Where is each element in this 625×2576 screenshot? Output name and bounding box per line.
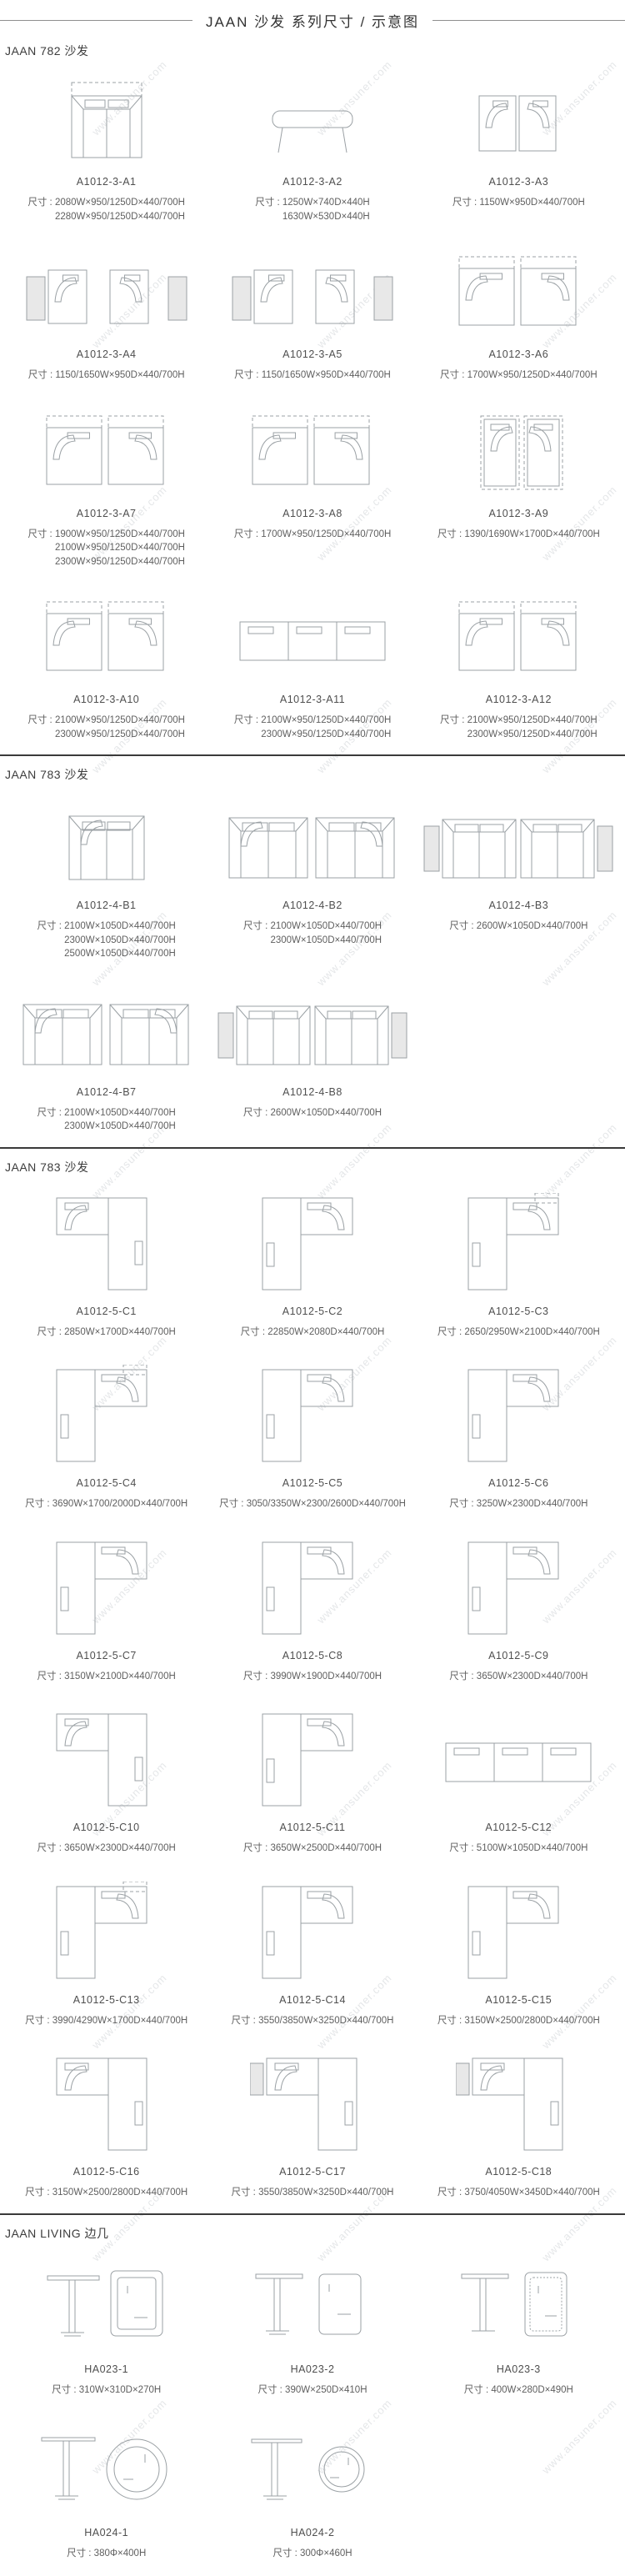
product-model: A1012-5-C15 [421, 1994, 617, 2006]
lshape-left-icon [8, 1535, 204, 1641]
product-row: HA023-1尺寸 : 310W×310D×270HHA023-2尺寸 : 39… [3, 2242, 622, 2406]
dimension-prefix: 尺寸 : [437, 1328, 465, 1338]
product-dimensions: 尺寸 : 3990/4290W×1700D×440/700H [8, 2017, 204, 2027]
dimension-prefix: 尺寸 : [243, 922, 271, 945]
lshape-left-icon [214, 1190, 410, 1297]
catalog-page: JAAN 沙发 系列尺寸 / 示意图 JAAN 782 沙发A1012-3-A1… [0, 0, 625, 2569]
lshape-left-icon [421, 1879, 617, 1986]
product-model: A1012-3-A6 [421, 348, 617, 360]
product-dimensions: 尺寸 : 1250W×740D×440H1630W×530D×440H [214, 198, 410, 222]
dimension-prefix: 尺寸 : [37, 1328, 65, 1338]
product-cell: A1012-3-A3尺寸 : 1150W×950D×440/700H [416, 59, 622, 232]
dimension-line: 2280W×950/1250D×440/700H [55, 213, 185, 223]
dimension-line: 1150/1650W×950D×440/700H [262, 371, 391, 381]
dimension-line: 390W×250D×410H [285, 2386, 367, 2396]
dimension-line: 2300W×1050D×440/700H [270, 936, 382, 946]
sofa-pair-icon [214, 798, 410, 891]
sofa-pair-table-icon [421, 798, 617, 891]
dimension-line: 1390/1690W×1700D×440/700H [464, 530, 599, 540]
side-table-dotted-icon [421, 2257, 617, 2355]
product-model: A1012-5-C4 [8, 1477, 204, 1489]
lshape-left-icon [214, 1535, 410, 1641]
product-cell: A1012-4-B7尺寸 : 2100W×1050D×440/700H2300W… [3, 970, 209, 1142]
lshape-left-icon [421, 1535, 617, 1641]
dimension-line: 1250W×740D×440H [282, 198, 370, 208]
product-model: HA023-2 [214, 2363, 410, 2375]
catalog-section: JAAN 783 沙发A1012-5-C1尺寸 : 2850W×1700D×44… [0, 1147, 625, 2208]
product-dimensions: 尺寸 : 1900W×950/1250D×440/700H2100W×950/1… [8, 530, 204, 568]
product-model: A1012-3-A11 [214, 694, 410, 705]
catalog-section: JAAN LIVING 边几HA023-1尺寸 : 310W×310D×270H… [0, 2213, 625, 2569]
product-dimensions: 尺寸 : 390W×250D×410H [214, 2386, 410, 2396]
dimension-line: 22850W×2080D×440/700H [267, 1328, 384, 1338]
product-model: A1012-5-C1 [8, 1306, 204, 1317]
product-cell: A1012-5-C9尺寸 : 3650W×2300D×440/700H [416, 1520, 622, 1692]
dimension-line: 2100W×1050D×440/700H [64, 922, 176, 932]
product-model: A1012-3-A8 [214, 508, 410, 519]
catalog-section: JAAN 783 沙发A1012-4-B1尺寸 : 2100W×1050D×44… [0, 754, 625, 1142]
dimension-prefix: 尺寸 : [37, 1672, 65, 1682]
product-cell: A1012-3-A8尺寸 : 1700W×950/1250D×440/700H [209, 391, 415, 578]
lshape-left-icon [214, 1362, 410, 1469]
product-dimensions: 尺寸 : 2850W×1700D×440/700H [8, 1328, 204, 1338]
dimension-line: 2300W×950/1250D×440/700H [467, 730, 597, 740]
dimension-prefix: 尺寸 : [440, 371, 467, 381]
sofa-pair-icon [8, 985, 204, 1078]
page-title: JAAN 沙发 系列尺寸 / 示意图 [206, 10, 419, 31]
dimension-line: 3250W×2300D×440/700H [477, 1500, 588, 1510]
product-model: HA023-3 [421, 2363, 617, 2375]
dimension-line: 2100W×1050D×440/700H [64, 1109, 176, 1119]
dimension-prefix: 尺寸 : [52, 2386, 79, 2396]
dimension-line: 5100W×1050D×440/700H [477, 1844, 588, 1854]
dimension-prefix: 尺寸 : [440, 716, 467, 739]
product-row: A1012-3-A7尺寸 : 1900W×950/1250D×440/700H2… [3, 391, 622, 578]
product-dimensions: 尺寸 : 2600W×1050D×440/700H [214, 1109, 410, 1119]
product-cell: A1012-5-C4尺寸 : 3690W×1700/2000D×440/700H [3, 1347, 209, 1520]
dimension-line: 2300W×950/1250D×440/700H [55, 558, 185, 568]
lshape-dashed-icon [8, 1879, 204, 1986]
product-dimensions: 尺寸 : 3550/3850W×3250D×440/700H [214, 2017, 410, 2027]
dimension-prefix: 尺寸 : [272, 2549, 300, 2559]
sofa-long-icon [214, 592, 410, 685]
side-table-portrait-icon [214, 2257, 410, 2355]
dimension-prefix: 尺寸 : [25, 2017, 52, 2027]
dimension-line: 2100W×950/1250D×440/700H [261, 716, 391, 726]
product-model: A1012-4-B2 [214, 900, 410, 911]
dimension-prefix: 尺寸 : [243, 1844, 271, 1854]
product-row: A1012-5-C4尺寸 : 3690W×1700/2000D×440/700H… [3, 1347, 622, 1520]
product-dimensions: 尺寸 : 3150W×2500/2800D×440/700H [8, 2188, 204, 2198]
dimension-line: 1630W×530D×440H [282, 213, 370, 223]
product-row: A1012-3-A1尺寸 : 2080W×950/1250D×440/700H2… [3, 59, 622, 232]
dimension-line: 1150/1650W×950D×440/700H [55, 371, 184, 381]
dimension-line: 3550/3850W×3250D×440/700H [258, 2017, 393, 2027]
lshape-right-icon [8, 2051, 204, 2158]
dimension-prefix: 尺寸 : [27, 716, 55, 739]
dimension-line: 2300W×1050D×440/700H [64, 1122, 176, 1132]
product-model: A1012-5-C8 [214, 1650, 410, 1661]
product-dimensions: 尺寸 : 1700W×950/1250D×440/700H [214, 530, 410, 540]
product-dimensions: 尺寸 : 3150W×2100D×440/700H [8, 1672, 204, 1682]
product-dimensions: 尺寸 : 2100W×1050D×440/700H2300W×1050D×440… [8, 1109, 204, 1132]
catalog-section: JAAN 782 沙发A1012-3-A1尺寸 : 2080W×950/1250… [0, 33, 625, 749]
dimension-line: 3650W×2500D×440/700H [270, 1844, 382, 1854]
product-cell: A1012-5-C11尺寸 : 3650W×2500D×440/700H [209, 1691, 415, 1864]
dimension-prefix: 尺寸 : [449, 1500, 477, 1510]
product-row: A1012-5-C10尺寸 : 3650W×2300D×440/700HA101… [3, 1691, 622, 1864]
module-pair-table-icon [214, 247, 410, 340]
product-dimensions: 尺寸 : 3550/3850W×3250D×440/700H [214, 2188, 410, 2198]
dimension-line: 1900W×950/1250D×440/700H [55, 530, 185, 540]
product-cell: HA023-3尺寸 : 400W×280D×490H [416, 2242, 622, 2406]
lshape-left-icon [214, 1879, 410, 1986]
dimension-line: 2600W×1050D×440/700H [270, 1109, 382, 1119]
dimension-prefix: 尺寸 : [25, 1500, 52, 1510]
product-cell: A1012-3-A5尺寸 : 1150/1650W×950D×440/700H [209, 232, 415, 391]
product-dimensions: 尺寸 : 3050/3350W×2300/2600D×440/700H [214, 1500, 410, 1510]
dimension-prefix: 尺寸 : [243, 1672, 271, 1682]
dimension-line: 3990/4290W×1700D×440/700H [52, 2017, 187, 2027]
product-model: HA024-1 [8, 2527, 204, 2538]
product-model: A1012-4-B1 [8, 900, 204, 911]
dimension-line: 2100W×950/1250D×440/700H [55, 544, 185, 554]
product-cell: HA023-2尺寸 : 390W×250D×410H [209, 2242, 415, 2406]
product-dimensions: 尺寸 : 3690W×1700/2000D×440/700H [8, 1500, 204, 1510]
product-dimensions: 尺寸 : 2080W×950/1250D×440/700H2280W×950/1… [8, 198, 204, 222]
dimension-line: 2850W×1700D×440/700H [64, 1328, 176, 1338]
chaise-pair-icon [421, 406, 617, 499]
dimension-line: 2500W×1050D×440/700H [64, 950, 176, 960]
dimension-line: 3650W×2300D×440/700H [64, 1844, 176, 1854]
product-row: A1012-4-B1尺寸 : 2100W×1050D×440/700H2300W… [3, 783, 622, 970]
dimension-prefix: 尺寸 : [437, 2188, 465, 2198]
module-pair-dashed-icon [421, 592, 617, 685]
dimension-prefix: 尺寸 : [437, 2017, 465, 2027]
product-cell: A1012-5-C18尺寸 : 3750/4050W×3450D×440/700… [416, 2036, 622, 2208]
page-header: JAAN 沙发 系列尺寸 / 示意图 [0, 0, 625, 33]
dimension-line: 3150W×2500/2800D×440/700H [464, 2017, 599, 2027]
product-model: A1012-5-C11 [214, 1822, 410, 1833]
product-model: A1012-3-A4 [8, 348, 204, 360]
product-cell: A1012-4-B2尺寸 : 2100W×1050D×440/700H2300W… [209, 783, 415, 970]
product-row: A1012-3-A4尺寸 : 1150/1650W×950D×440/700HA… [3, 232, 622, 391]
lshape-table-icon [214, 2051, 410, 2158]
dimension-prefix: 尺寸 : [464, 2386, 492, 2396]
product-row: A1012-5-C13尺寸 : 3990/4290W×1700D×440/700… [3, 1864, 622, 2037]
product-cell: A1012-3-A7尺寸 : 1900W×950/1250D×440/700H2… [3, 391, 209, 578]
product-cell: A1012-5-C15尺寸 : 3150W×2500/2800D×440/700… [416, 1864, 622, 2037]
product-dimensions: 尺寸 : 310W×310D×270H [8, 2386, 204, 2396]
product-cell: A1012-3-A4尺寸 : 1150/1650W×950D×440/700H [3, 232, 209, 391]
dimension-line: 3750/4050W×3450D×440/700H [464, 2188, 599, 2198]
dimension-prefix: 尺寸 : [231, 2017, 258, 2027]
product-row: A1012-4-B7尺寸 : 2100W×1050D×440/700H2300W… [3, 970, 622, 1142]
product-model: A1012-5-C10 [8, 1822, 204, 1833]
dimension-prefix: 尺寸 : [231, 2188, 258, 2198]
product-dimensions: 尺寸 : 380Φ×400H [8, 2549, 204, 2559]
lshape-left-icon [214, 1706, 410, 1813]
product-model: A1012-4-B8 [214, 1086, 410, 1098]
product-dimensions: 尺寸 : 2600W×1050D×440/700H [421, 922, 617, 932]
dimension-prefix: 尺寸 : [449, 1672, 477, 1682]
dimension-line: 3150W×2500/2800D×440/700H [52, 2188, 187, 2198]
product-model: HA024-2 [214, 2527, 410, 2538]
product-dimensions: 尺寸 : 2650/2950W×2100D×440/700H [421, 1328, 617, 1338]
dimension-line: 2600W×1050D×440/700H [477, 922, 588, 932]
product-cell: A1012-3-A12尺寸 : 2100W×950/1250D×440/700H… [416, 577, 622, 749]
product-model: A1012-3-A10 [8, 694, 204, 705]
product-row: A1012-5-C1尺寸 : 2850W×1700D×440/700HA1012… [3, 1175, 622, 1348]
product-model: A1012-3-A2 [214, 176, 410, 188]
product-model: A1012-5-C2 [214, 1306, 410, 1317]
dimension-prefix: 尺寸 : [234, 371, 262, 381]
dimension-line: 2300W×950/1250D×440/700H [261, 730, 391, 740]
product-model: A1012-5-C3 [421, 1306, 617, 1317]
module-pair-icon [421, 74, 617, 168]
product-cell: HA024-1尺寸 : 380Φ×400H [3, 2405, 209, 2569]
section-title: JAAN 783 沙发 [5, 766, 622, 783]
dimension-prefix: 尺寸 : [37, 1109, 65, 1132]
dimension-line: 400W×280D×490H [491, 2386, 572, 2396]
lshape-dashed-icon [8, 1362, 204, 1469]
dimension-line: 1700W×950/1250D×440/700H [261, 530, 391, 540]
module-pair-dashed-icon [8, 406, 204, 499]
lshape-dashed-icon [421, 1190, 617, 1297]
product-model: HA023-1 [8, 2363, 204, 2375]
dimension-line: 380Φ×400H [94, 2549, 147, 2559]
lshape-right-icon [8, 1190, 204, 1297]
dimension-prefix: 尺寸 : [449, 922, 477, 932]
product-dimensions: 尺寸 : 2100W×1050D×440/700H2300W×1050D×440… [214, 922, 410, 945]
product-model: A1012-3-A3 [421, 176, 617, 188]
product-dimensions: 尺寸 : 1150/1650W×950D×440/700H [8, 371, 204, 381]
product-dimensions: 尺寸 : 300Φ×460H [214, 2549, 410, 2559]
product-cell: A1012-3-A10尺寸 : 2100W×950/1250D×440/700H… [3, 577, 209, 749]
product-cell: A1012-5-C2尺寸 : 22850W×2080D×440/700H [209, 1175, 415, 1348]
dimension-line: 2300W×1050D×440/700H [64, 936, 176, 946]
lshape-left-icon [421, 1362, 617, 1469]
product-model: A1012-5-C16 [8, 2166, 204, 2178]
section-title: JAAN LIVING 边几 [5, 2225, 622, 2242]
product-model: A1012-5-C6 [421, 1477, 617, 1489]
product-dimensions: 尺寸 : 3650W×2500D×440/700H [214, 1844, 410, 1854]
section-title: JAAN 783 沙发 [5, 1159, 622, 1175]
product-model: A1012-5-C14 [214, 1994, 410, 2006]
product-dimensions: 尺寸 : 1150/1650W×950D×440/700H [214, 371, 410, 381]
product-dimensions: 尺寸 : 1700W×950/1250D×440/700H [421, 371, 617, 381]
product-cell: A1012-5-C3尺寸 : 2650/2950W×2100D×440/700H [416, 1175, 622, 1348]
product-dimensions: 尺寸 : 3650W×2300D×440/700H [8, 1844, 204, 1854]
dimension-line: 1700W×950/1250D×440/700H [467, 371, 597, 381]
round-table-large-icon [8, 2420, 204, 2518]
dimension-line: 3990W×1900D×440/700H [270, 1672, 382, 1682]
product-cell: A1012-4-B8尺寸 : 2600W×1050D×440/700H [209, 970, 415, 1142]
product-cell: A1012-3-A9尺寸 : 1390/1690W×1700D×440/700H [416, 391, 622, 578]
product-dimensions: 尺寸 : 1390/1690W×1700D×440/700H [421, 530, 617, 540]
product-cell: A1012-3-A11尺寸 : 2100W×950/1250D×440/700H… [209, 577, 415, 749]
product-cell: HA023-1尺寸 : 310W×310D×270H [3, 2242, 209, 2406]
product-dimensions: 尺寸 : 2100W×950/1250D×440/700H2300W×950/1… [421, 716, 617, 739]
product-dimensions: 尺寸 : 3990W×1900D×440/700H [214, 1672, 410, 1682]
product-dimensions: 尺寸 : 2100W×950/1250D×440/700H2300W×950/1… [8, 716, 204, 739]
sofa-pair-table-icon [214, 985, 410, 1078]
dimension-prefix: 尺寸 : [243, 1109, 271, 1119]
dimension-line: 3050/3350W×2300/2600D×440/700H [247, 1500, 406, 1510]
product-dimensions: 尺寸 : 22850W×2080D×440/700H [214, 1328, 410, 1338]
sofa-top-icon [8, 74, 204, 168]
product-dimensions: 尺寸 : 2100W×1050D×440/700H2300W×1050D×440… [8, 922, 204, 960]
product-cell: A1012-3-A6尺寸 : 1700W×950/1250D×440/700H [416, 232, 622, 391]
sofa-long-icon [421, 1706, 617, 1813]
product-model: A1012-3-A7 [8, 508, 204, 519]
dimension-prefix: 尺寸 : [241, 1328, 268, 1338]
section-title: JAAN 782 沙发 [5, 43, 622, 59]
product-model: A1012-5-C12 [421, 1822, 617, 1833]
product-row: A1012-3-A10尺寸 : 2100W×950/1250D×440/700H… [3, 577, 622, 749]
dimension-line: 2650/2950W×2100D×440/700H [464, 1328, 599, 1338]
sections-container: JAAN 782 沙发A1012-3-A1尺寸 : 2080W×950/1250… [0, 33, 625, 2569]
header-rule-right [432, 20, 625, 21]
product-dimensions: 尺寸 : 3150W×2500/2800D×440/700H [421, 2017, 617, 2027]
dimension-prefix: 尺寸 : [452, 198, 480, 208]
module-pair-dashed-icon [8, 592, 204, 685]
dimension-line: 300Φ×460H [300, 2549, 352, 2559]
product-row: A1012-5-C7尺寸 : 3150W×2100D×440/700HA1012… [3, 1520, 622, 1692]
product-dimensions: 尺寸 : 2100W×950/1250D×440/700H2300W×950/1… [214, 716, 410, 739]
product-model: A1012-5-C13 [8, 1994, 204, 2006]
product-model: A1012-3-A5 [214, 348, 410, 360]
dimension-prefix: 尺寸 : [67, 2549, 94, 2559]
product-row: HA024-1尺寸 : 380Φ×400HHA024-2尺寸 : 300Φ×46… [3, 2405, 622, 2569]
product-model: A1012-5-C17 [214, 2166, 410, 2178]
dimension-prefix: 尺寸 : [27, 198, 55, 222]
product-cell: HA024-2尺寸 : 300Φ×460H [209, 2405, 415, 2569]
dimension-line: 3550/3850W×3250D×440/700H [258, 2188, 393, 2198]
product-model: A1012-5-C7 [8, 1650, 204, 1661]
product-model: A1012-3-A12 [421, 694, 617, 705]
product-dimensions: 尺寸 : 3250W×2300D×440/700H [421, 1500, 617, 1510]
product-model: A1012-5-C18 [421, 2166, 617, 2178]
dimension-prefix: 尺寸 : [257, 2386, 285, 2396]
product-cell: A1012-4-B1尺寸 : 2100W×1050D×440/700H2300W… [3, 783, 209, 970]
dimension-line: 2080W×950/1250D×440/700H [55, 198, 185, 208]
product-dimensions: 尺寸 : 1150W×950D×440/700H [421, 198, 617, 208]
dimension-prefix: 尺寸 : [219, 1500, 247, 1510]
product-cell: A1012-5-C13尺寸 : 3990/4290W×1700D×440/700… [3, 1864, 209, 2037]
dimension-line: 1150W×950D×440/700H [479, 198, 584, 208]
dimension-prefix: 尺寸 : [449, 1844, 477, 1854]
product-model: A1012-4-B7 [8, 1086, 204, 1098]
product-cell: A1012-5-C16尺寸 : 3150W×2500/2800D×440/700… [3, 2036, 209, 2208]
dimension-prefix: 尺寸 : [37, 922, 65, 960]
header-rule-left [0, 20, 192, 21]
product-model: A1012-4-B3 [421, 900, 617, 911]
dimension-line: 2100W×950/1250D×440/700H [55, 716, 185, 726]
product-dimensions: 尺寸 : 3750/4050W×3450D×440/700H [421, 2188, 617, 2198]
round-table-small-icon [214, 2420, 410, 2518]
module-pair-table-icon [8, 247, 204, 340]
sofa-2seat-icon [8, 798, 204, 891]
product-cell: A1012-5-C5尺寸 : 3050/3350W×2300/2600D×440… [209, 1347, 415, 1520]
product-cell: A1012-3-A2尺寸 : 1250W×740D×440H1630W×530D… [209, 59, 415, 232]
ottoman-icon [214, 74, 410, 168]
dimension-prefix: 尺寸 : [37, 1844, 65, 1854]
product-model: A1012-3-A1 [8, 176, 204, 188]
dimension-prefix: 尺寸 : [234, 530, 262, 540]
product-cell: A1012-5-C12尺寸 : 5100W×1050D×440/700H [416, 1691, 622, 1864]
product-row: A1012-5-C16尺寸 : 3150W×2500/2800D×440/700… [3, 2036, 622, 2208]
product-dimensions: 尺寸 : 400W×280D×490H [421, 2386, 617, 2396]
dimension-prefix: 尺寸 : [255, 198, 282, 222]
product-dimensions: 尺寸 : 3650W×2300D×440/700H [421, 1672, 617, 1682]
product-model: A1012-5-C5 [214, 1477, 410, 1489]
lshape-table-icon [421, 2051, 617, 2158]
dimension-line: 2100W×950/1250D×440/700H [467, 716, 597, 726]
product-cell: A1012-5-C17尺寸 : 3550/3850W×3250D×440/700… [209, 2036, 415, 2208]
dimension-prefix: 尺寸 : [234, 716, 262, 739]
product-dimensions: 尺寸 : 5100W×1050D×440/700H [421, 1844, 617, 1854]
product-cell: A1012-4-B3尺寸 : 2600W×1050D×440/700H [416, 783, 622, 970]
dimension-prefix: 尺寸 : [27, 530, 55, 568]
side-table-square-icon [8, 2257, 204, 2355]
product-cell: A1012-5-C8尺寸 : 3990W×1900D×440/700H [209, 1520, 415, 1692]
dimension-line: 3150W×2100D×440/700H [64, 1672, 176, 1682]
product-cell: A1012-3-A1尺寸 : 2080W×950/1250D×440/700H2… [3, 59, 209, 232]
lshape-right-icon [8, 1706, 204, 1813]
dimension-line: 2300W×950/1250D×440/700H [55, 730, 185, 740]
dimension-prefix: 尺寸 : [28, 371, 56, 381]
dimension-prefix: 尺寸 : [25, 2188, 52, 2198]
dimension-line: 3650W×2300D×440/700H [477, 1672, 588, 1682]
product-cell: A1012-5-C7尺寸 : 3150W×2100D×440/700H [3, 1520, 209, 1692]
product-model: A1012-5-C9 [421, 1650, 617, 1661]
product-cell: A1012-5-C6尺寸 : 3250W×2300D×440/700H [416, 1347, 622, 1520]
dimension-prefix: 尺寸 : [437, 530, 465, 540]
module-pair-dashed-icon [214, 406, 410, 499]
dimension-line: 2100W×1050D×440/700H [270, 922, 382, 932]
product-cell: A1012-5-C10尺寸 : 3650W×2300D×440/700H [3, 1691, 209, 1864]
module-pair-dashed-icon [421, 247, 617, 340]
dimension-line: 3690W×1700/2000D×440/700H [52, 1500, 187, 1510]
product-cell: A1012-5-C1尺寸 : 2850W×1700D×440/700H [3, 1175, 209, 1348]
dimension-line: 310W×310D×270H [79, 2386, 161, 2396]
product-model: A1012-3-A9 [421, 508, 617, 519]
product-cell: A1012-5-C14尺寸 : 3550/3850W×3250D×440/700… [209, 1864, 415, 2037]
